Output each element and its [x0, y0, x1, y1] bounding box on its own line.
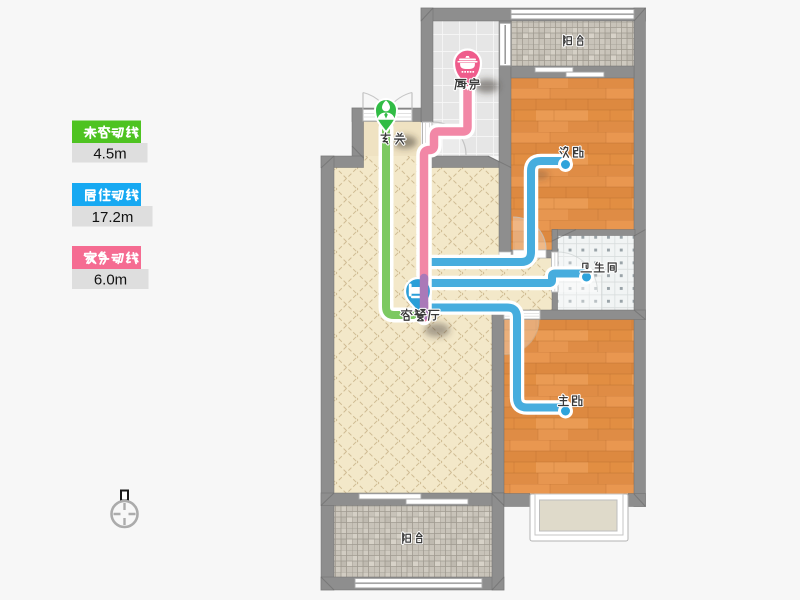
- svg-text:4.5m: 4.5m: [93, 145, 126, 162]
- svg-text:17.2m: 17.2m: [92, 209, 134, 226]
- svg-text:6.0m: 6.0m: [94, 272, 127, 289]
